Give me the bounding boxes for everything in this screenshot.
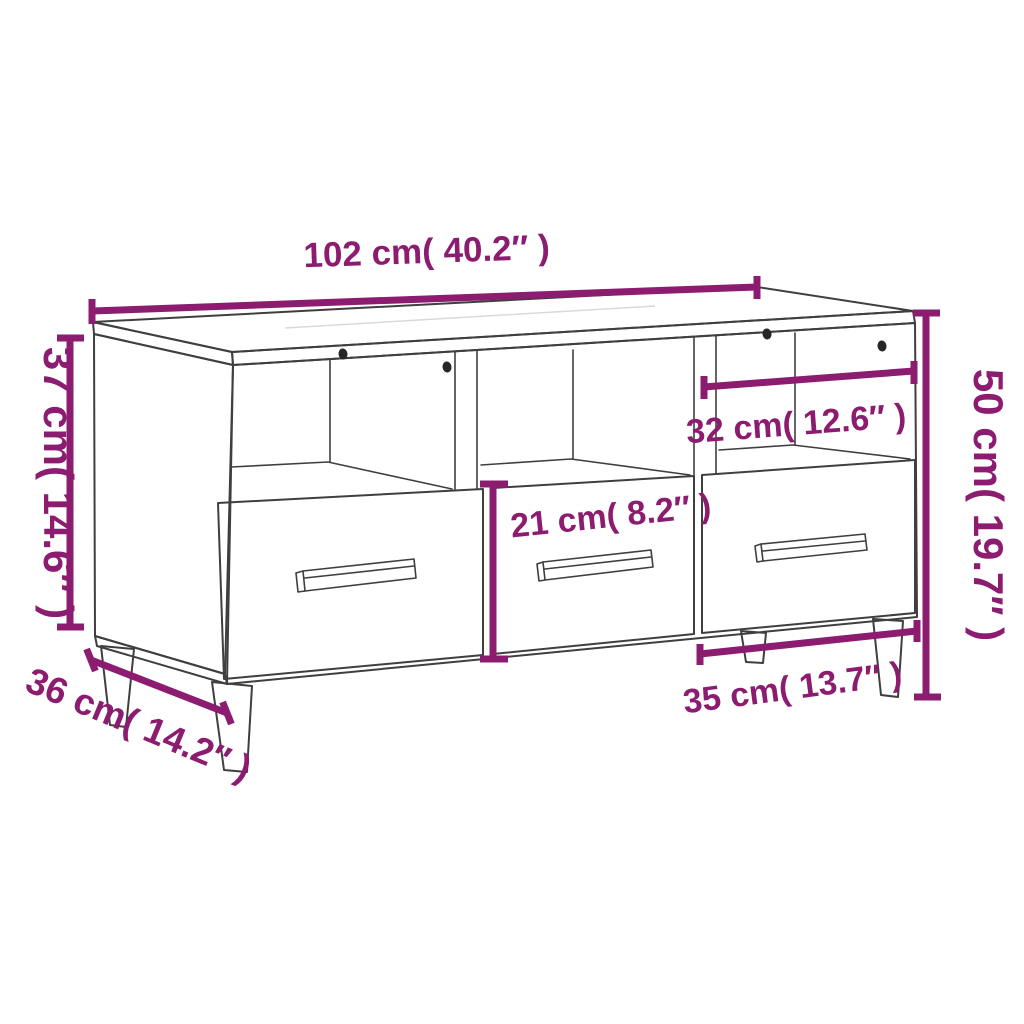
dim-depth: 36 cm( 14.2″ ) [20,649,257,789]
cabinet-top-left-edge [93,322,233,365]
dim-overall-height: 50 cm( 19.7″ ) [913,313,1012,697]
shelf-divider-left [455,350,477,490]
drawer-handle-left [296,559,416,592]
shelf-compartment-left [231,359,452,489]
dim-overall-width: 102 cm( 40.2″ ) [92,228,757,324]
drawer-handle-right [755,534,867,562]
dim-drawer-width: 35 cm( 13.7″ ) [681,620,917,721]
cable-hole-icon [877,340,887,352]
dim-upper-height-label: 37 cm( 14.6″ ) [35,347,82,619]
dim-drawer-height-label: 21 cm( 8.2″ ) [509,487,713,546]
cable-holes [338,328,887,373]
cable-hole-icon [442,361,452,373]
drawer-handle-middle [537,550,653,581]
drawer-left [218,489,483,679]
dim-drawer-width-label: 35 cm( 13.7″ ) [681,655,904,721]
dim-overall-width-label: 102 cm( 40.2″ ) [303,228,551,276]
product-image: 102 cm( 40.2″ ) 37 cm( 14.6″ ) 50 cm( 19… [0,0,1024,1024]
shelf-compartment-middle [481,350,690,475]
cabinet-left-panel [94,334,233,674]
cabinet-bottom-left-edge [95,636,227,684]
dim-drawer-height: 21 cm( 8.2″ ) [480,484,713,659]
dim-shelf-width-label: 32 cm( 12.6″ ) [685,397,908,451]
dim-upper-height: 37 cm( 14.6″ ) [35,338,84,627]
dim-overall-height-label: 50 cm( 19.7″ ) [965,369,1012,641]
shelf-divider-right [694,336,716,476]
dimension-annotations: 102 cm( 40.2″ ) 37 cm( 14.6″ ) 50 cm( 19… [20,228,1012,790]
cable-hole-icon [762,328,772,340]
dimension-diagram-svg: 102 cm( 40.2″ ) 37 cm( 14.6″ ) 50 cm( 19… [0,0,1024,1024]
dim-shelf-width: 32 cm( 12.6″ ) [685,361,914,451]
